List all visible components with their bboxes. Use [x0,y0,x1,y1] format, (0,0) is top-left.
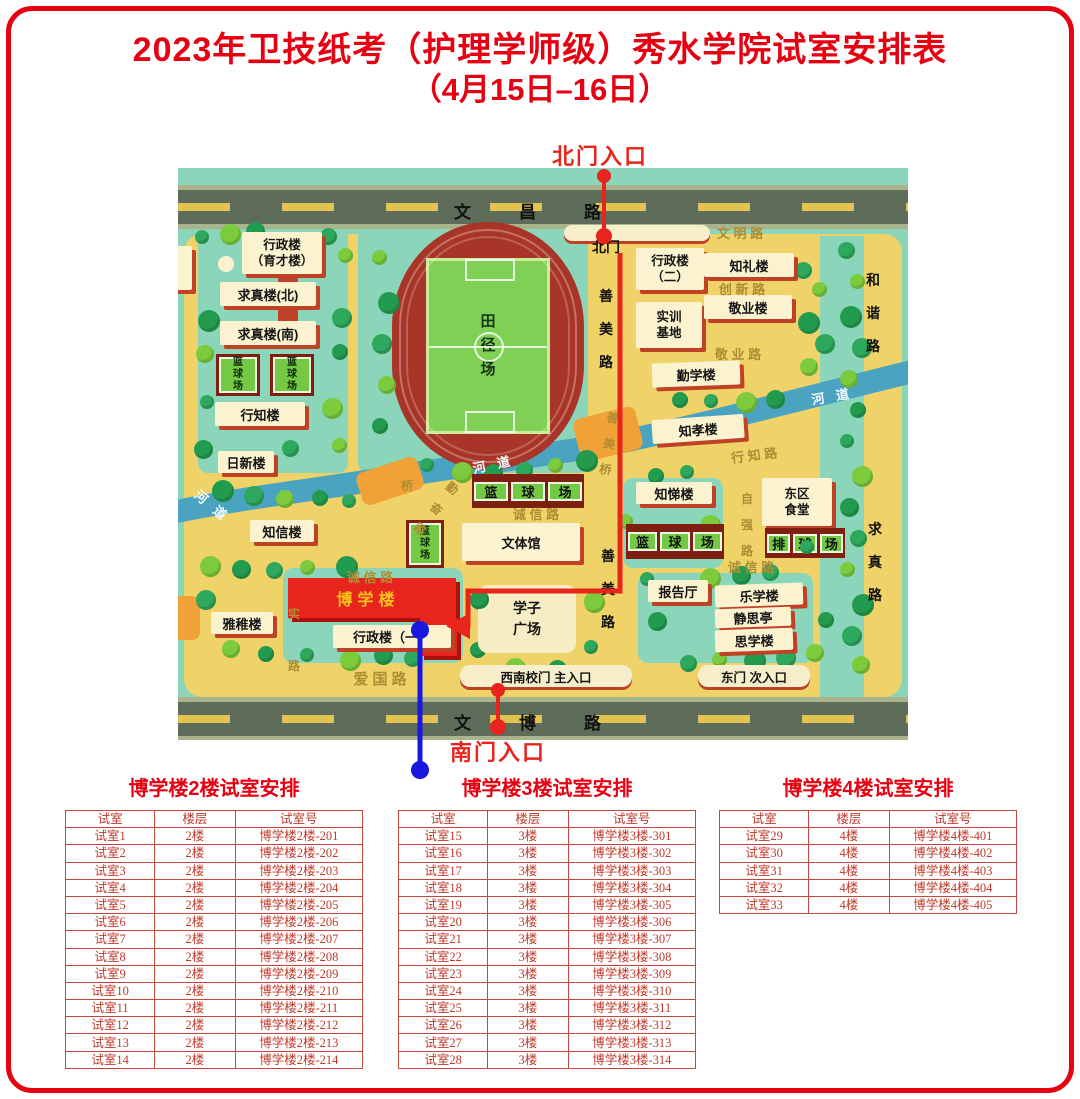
table-cell: 博学楼3楼-303 [568,862,695,879]
table-cell: 试室10 [66,982,155,999]
table-row: 试室163楼博学楼3楼-302 [399,845,696,862]
table-cell: 博学楼2楼-213 [235,1034,362,1051]
bridge-shanmei-label: 善 美 桥 [598,417,619,470]
table-cell: 试室9 [66,965,155,982]
table-cell: 博学楼3楼-305 [568,896,695,913]
table-cell: 3楼 [488,879,568,896]
table-cell: 博学楼2楼-207 [235,931,362,948]
road-qiuzhen: 求 真 路 [864,513,886,612]
road-chengxin-center: 诚 信 路 [490,506,582,521]
bld-baogaoting: 报告厅 [648,580,708,602]
table-title-3: 博学楼4楼试室安排 [719,772,1017,798]
table-cell: 试室15 [399,828,488,845]
court-cell: 球 [660,532,689,551]
road-shi: 实 路 [286,610,302,670]
road-chengxin-right: 诚 信 路 [705,559,797,574]
table-row: 试室62楼博学楼2楼-206 [66,914,363,931]
table-row: 试室304楼博学楼4楼-402 [720,845,1017,862]
table-cell: 博学楼2楼-205 [235,896,362,913]
table-cell: 博学楼3楼-302 [568,845,695,862]
table-cell: 试室18 [399,879,488,896]
table-cell: 博学楼2楼-202 [235,845,362,862]
column-header: 试室 [66,811,155,828]
table-row: 试室22楼博学楼2楼-202 [66,845,363,862]
road-hexie: 和 谐 路 [862,264,884,363]
column-header: 试室号 [568,811,695,828]
table-cell: 博学楼3楼-314 [568,1051,695,1068]
bld-lexuelou: 乐学楼 [715,582,804,607]
bld-yazhilou: 雅稚楼 [211,612,273,634]
court-left-1: 篮 球 场 [216,354,260,396]
table-cell: 博学楼4楼-405 [889,896,1016,913]
table-cell: 3楼 [488,1017,568,1034]
table-cell: 试室5 [66,896,155,913]
column-header: 楼层 [488,811,568,828]
table-row: 试室324楼博学楼4楼-404 [720,879,1017,896]
table-row: 试室42楼博学楼2楼-204 [66,879,363,896]
table-cell: 试室21 [399,931,488,948]
table-cell: 3楼 [488,931,568,948]
table-row: 试室314楼博学楼4楼-403 [720,862,1017,879]
table-cell: 3楼 [488,828,568,845]
table-cell: 博学楼3楼-312 [568,1017,695,1034]
header-row: 试室楼层试室号 [66,811,363,828]
table-cell: 2楼 [155,931,235,948]
table-cell: 博学楼3楼-311 [568,1000,695,1017]
table-cell: 3楼 [488,914,568,931]
table-cell: 试室6 [66,914,155,931]
bld-zhixiaolou: 知孝楼 [651,414,744,444]
table-cell: 试室13 [66,1034,155,1051]
table-floor3: 博学楼3楼试室安排试室楼层试室号试室153楼博学楼3楼-301试室163楼博学楼… [398,772,696,1069]
table-cell: 博学楼4楼-404 [889,879,1016,896]
table-cell: 博学楼2楼-212 [235,1017,362,1034]
table-cell: 4楼 [809,828,889,845]
court-cell: 篮 [628,532,657,551]
table-cell: 博学楼3楼-310 [568,982,695,999]
court-cell: 排 [767,534,790,553]
table-row: 试室213楼博学楼3楼-307 [399,931,696,948]
north-gate-entrance-label: 北门入口 [552,139,648,171]
table-cell: 3楼 [488,1034,568,1051]
plaza-xuezi: 学子 广场 [478,585,576,653]
table-cell: 博学楼2楼-209 [235,965,362,982]
column-header: 试室号 [889,811,1016,828]
table-row: 试室193楼博学楼3楼-305 [399,896,696,913]
court-cell: 球 [511,482,545,501]
table-cell: 试室22 [399,948,488,965]
table-cell: 3楼 [488,896,568,913]
gate-southwest: 西南校门 主入口 [460,665,632,687]
table-cell: 试室12 [66,1017,155,1034]
table-cell: 试室2 [66,845,155,862]
map-items-layer: 行政楼 （育才楼）求真楼(北)求真楼(南)篮 球 场篮 球 场行知楼日新楼知信楼… [178,168,908,740]
table-cell: 2楼 [155,914,235,931]
column-header: 楼层 [155,811,235,828]
road-jingye: 敬 业 路 [694,345,782,361]
table-row: 试室283楼博学楼3楼-314 [399,1051,696,1068]
table-cell: 试室14 [66,1051,155,1068]
table-cell: 博学楼2楼-211 [235,1000,362,1017]
table-row: 试室92楼博学楼2楼-209 [66,965,363,982]
header-row: 试室楼层试室号 [720,811,1017,828]
bld-wentiguan: 文体馆 [462,523,580,561]
exam-arrangement-poster: 2023年卫技纸考（护理学师级）秀水学院试室安排表 （4月15日–16日） 文昌… [0,0,1080,1099]
court-cell: 场 [548,482,582,501]
table-floor2: 博学楼2楼试室安排试室楼层试室号试室12楼博学楼2楼-201试室22楼博学楼2楼… [65,772,363,1069]
gate-north-label: 北门 [582,238,630,256]
table-cell: 博学楼3楼-307 [568,931,695,948]
table-cell: 博学楼2楼-204 [235,879,362,896]
column-header: 试室 [399,811,488,828]
exam-room-table-3: 试室楼层试室号试室294楼博学楼4楼-401试室304楼博学楼4楼-402试室3… [719,810,1017,914]
table-cell: 2楼 [155,982,235,999]
table-cell: 试室33 [720,896,809,913]
column-header: 试室 [720,811,809,828]
road-wenbo-label: 文博路 [454,709,649,734]
table-cell: 2楼 [155,828,235,845]
road-chengxin-left: 诚 信 路 [323,568,417,584]
bld-xingzhilou: 行知楼 [215,402,305,426]
south-gate-entrance-label: 南门入口 [450,735,546,767]
table-cell: 2楼 [155,862,235,879]
table-cell: 试室29 [720,828,809,845]
table-cell: 2楼 [155,1017,235,1034]
courts-right: 篮球场 [626,524,724,559]
table-cell: 2楼 [155,1000,235,1017]
court-left-2: 篮 球 场 [270,354,314,396]
table-cell: 4楼 [809,862,889,879]
bld-zhililou: 知礼楼 [704,253,794,277]
table-cell: 博学楼3楼-306 [568,914,695,931]
table-row: 试室183楼博学楼3楼-304 [399,879,696,896]
table-row: 试室233楼博学楼3楼-309 [399,965,696,982]
table-cell: 3楼 [488,862,568,879]
table-cell: 2楼 [155,965,235,982]
bld-qiuzhenlou-north: 求真楼(北) [220,282,316,306]
table-cell: 博学楼4楼-402 [889,845,1016,862]
table-floor4: 博学楼4楼试室安排试室楼层试室号试室294楼博学楼4楼-401试室304楼博学楼… [719,772,1017,914]
table-cell: 试室27 [399,1034,488,1051]
table-row: 试室263楼博学楼3楼-312 [399,1017,696,1034]
table-row: 试室294楼博学楼4楼-401 [720,828,1017,845]
table-row: 试室132楼博学楼2楼-213 [66,1034,363,1051]
tree-icon [800,540,814,554]
bld-xingzhenglou-2: 行政楼 （二） [636,248,704,290]
table-cell: 2楼 [155,1034,235,1051]
court-cell: 篮 [474,482,508,501]
road-aiguo: 爱 国 路 [318,668,442,688]
bridge-label: 桥 [400,478,414,494]
table-cell: 试室25 [399,1000,488,1017]
table-cell: 博学楼2楼-210 [235,982,362,999]
table-cell: 试室4 [66,879,155,896]
table-title-1: 博学楼2楼试室安排 [65,772,363,798]
table-cell: 3楼 [488,845,568,862]
table-cell: 博学楼3楼-309 [568,965,695,982]
gate-east: 东门 次入口 [698,665,810,687]
column-header: 楼层 [809,811,889,828]
road-shanmei-lower: 善 美 路 [598,540,618,639]
table-cell: 试室26 [399,1017,488,1034]
tree-icon [584,592,605,613]
table-cell: 试室19 [399,896,488,913]
column-header: 试室号 [235,811,362,828]
river-label-right: 河 道 [803,381,861,408]
court-cell: 场 [693,532,722,551]
table-cell: 4楼 [809,845,889,862]
table-cell: 4楼 [809,879,889,896]
table-cell: 试室11 [66,1000,155,1017]
table-cell: 4楼 [809,896,889,913]
table-cell: 2楼 [155,896,235,913]
table-cell: 3楼 [488,1000,568,1017]
tree-icon [470,590,489,609]
table-cell: 博学楼2楼-201 [235,828,362,845]
river-label-left: 河 道 [188,482,238,528]
courts-center: 篮球场 [472,474,584,508]
table-cell: 3楼 [488,948,568,965]
bld-zhixinlou: 知信楼 [250,520,314,542]
table-cell: 博学楼3楼-304 [568,879,695,896]
road-wenchang-label: 文昌路 [454,198,649,223]
table-row: 试室203楼博学楼3楼-306 [399,914,696,931]
road-xingzhi: 行 知 路 [709,441,798,468]
table-cell: 2楼 [155,948,235,965]
table-row: 试室12楼博学楼2楼-201 [66,828,363,845]
table-row: 试室122楼博学楼2楼-212 [66,1017,363,1034]
bld-jingsiting: 静思亭 [715,607,792,629]
table-cell: 试室20 [399,914,488,931]
table-cell: 试室16 [399,845,488,862]
bld-xingzhenglou-yucai: 行政楼 （育才楼） [242,232,322,274]
court-cell: 场 [820,534,843,553]
table-cell: 2楼 [155,879,235,896]
table-cell: 试室3 [66,862,155,879]
table-cell: 3楼 [488,965,568,982]
table-row: 试室32楼博学楼2楼-203 [66,862,363,879]
table-row: 试室52楼博学楼2楼-205 [66,896,363,913]
campus-map: 文昌路 文博路 田 径 场 行政楼 （育才楼）求真楼(北)求真楼(南)篮 球 场… [178,168,908,740]
bld-jingyelou: 敬业楼 [704,295,792,319]
bld-qinxuelou: 勤学楼 [652,360,741,387]
table-cell: 试室8 [66,948,155,965]
table-row: 试室72楼博学楼2楼-207 [66,931,363,948]
table-cell: 博学楼2楼-208 [235,948,362,965]
page-subtitle: （4月15日–16日） [0,64,1080,109]
table-row: 试室243楼博学楼3楼-310 [399,982,696,999]
table-row: 试室112楼博学楼2楼-211 [66,1000,363,1017]
bld-shixun-jidi: 实训 基地 [636,302,702,348]
table-cell: 试室31 [720,862,809,879]
header-row: 试室楼层试室号 [399,811,696,828]
table-cell: 博学楼3楼-313 [568,1034,695,1051]
bld-dongqu-shitang: 东区 食堂 [762,478,832,526]
table-cell: 试室7 [66,931,155,948]
table-cell: 试室30 [720,845,809,862]
table-cell: 博学楼4楼-401 [889,828,1016,845]
table-row: 试室273楼博学楼3楼-313 [399,1034,696,1051]
table-row: 试室334楼博学楼4楼-405 [720,896,1017,913]
table-cell: 2楼 [155,845,235,862]
table-cell: 试室1 [66,828,155,845]
table-row: 试室102楼博学楼2楼-210 [66,982,363,999]
bld-qiuzhenlou-south: 求真楼(南) [220,321,316,345]
road-shanmei-upper: 善 美 路 [596,280,616,379]
table-cell: 博学楼2楼-214 [235,1051,362,1068]
table-cell: 试室24 [399,982,488,999]
bld-rixinlou: 日新楼 [218,451,274,473]
table-row: 试室153楼博学楼3楼-301 [399,828,696,845]
table-cell: 博学楼3楼-301 [568,828,695,845]
table-cell: 试室28 [399,1051,488,1068]
table-cell: 试室17 [399,862,488,879]
bld-sixuelou: 思学楼 [715,628,794,653]
table-cell: 试室32 [720,879,809,896]
table-cell: 博学楼2楼-203 [235,862,362,879]
table-cell: 博学楼3楼-308 [568,948,695,965]
table-cell: 3楼 [488,982,568,999]
table-cell: 博学楼2楼-206 [235,914,362,931]
table-row: 试室173楼博学楼3楼-303 [399,862,696,879]
exam-room-table-1: 试室楼层试室号试室12楼博学楼2楼-201试室22楼博学楼2楼-202试室32楼… [65,810,363,1069]
table-row: 试室142楼博学楼2楼-214 [66,1051,363,1068]
table-title-2: 博学楼3楼试室安排 [398,772,696,798]
table-row: 试室82楼博学楼2楼-208 [66,948,363,965]
bld-xingzhenglou-1: 行政楼（一） [333,625,451,648]
bld-zhitilou: 知悌楼 [636,482,712,504]
table-row: 试室253楼博学楼3楼-311 [399,1000,696,1017]
table-cell: 博学楼4楼-403 [889,862,1016,879]
table-cell: 2楼 [155,1051,235,1068]
exam-room-table-2: 试室楼层试室号试室153楼博学楼3楼-301试室163楼博学楼3楼-302试室1… [398,810,696,1069]
table-row: 试室223楼博学楼3楼-308 [399,948,696,965]
table-cell: 3楼 [488,1051,568,1068]
road-chuangxin: 创 新 路 [696,280,788,296]
bld-boxuelou-label: 博学楼 [306,586,430,610]
road-wenming: 文 明 路 [694,224,786,240]
table-cell: 试室23 [399,965,488,982]
